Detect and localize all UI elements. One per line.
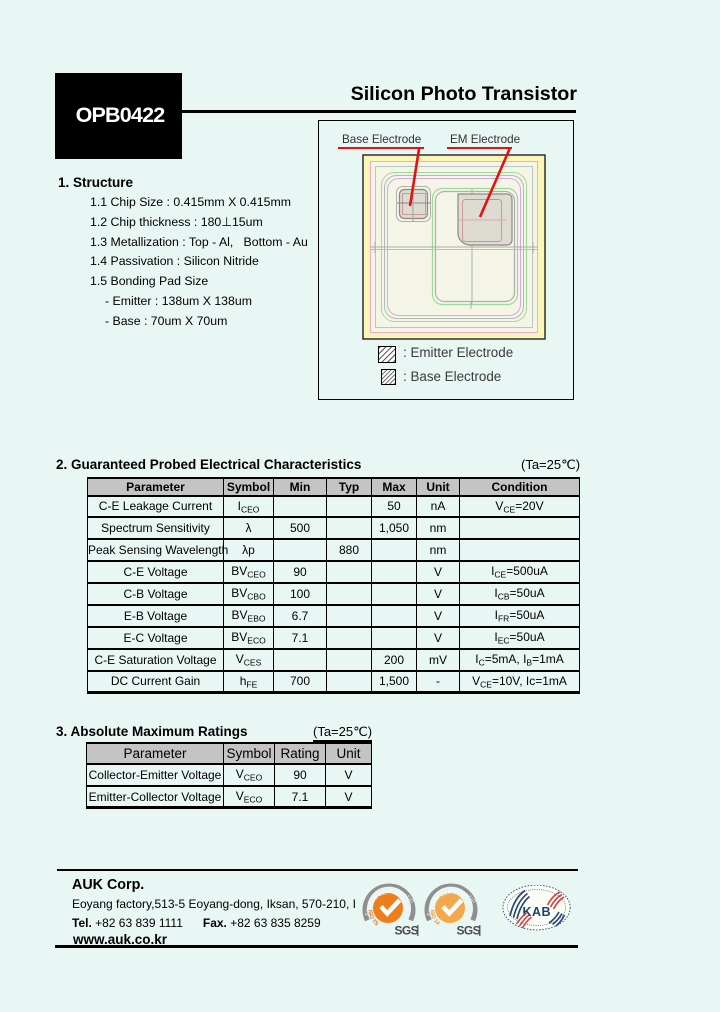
svg-text:SGS: SGS — [457, 924, 481, 938]
svg-text:SGS: SGS — [395, 924, 419, 938]
